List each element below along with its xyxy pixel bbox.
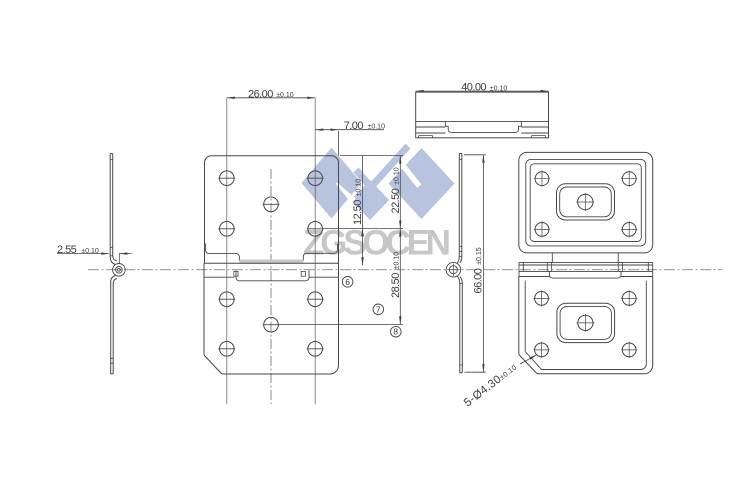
svg-text:±0.10: ±0.10 xyxy=(490,85,508,92)
svg-text:22.50: 22.50 xyxy=(390,188,402,213)
svg-text:2.55: 2.55 xyxy=(57,244,77,256)
svg-text:8: 8 xyxy=(393,327,398,337)
svg-text:±0.10: ±0.10 xyxy=(394,252,401,270)
svg-text:28.50: 28.50 xyxy=(390,273,402,298)
svg-text:±0.10: ±0.10 xyxy=(81,248,99,255)
svg-text:±0.10: ±0.10 xyxy=(356,179,363,197)
svg-text:40.00: 40.00 xyxy=(461,82,486,94)
svg-text:7.00: 7.00 xyxy=(344,120,364,132)
svg-text:6: 6 xyxy=(345,277,350,287)
svg-text:±0.10: ±0.10 xyxy=(394,167,401,185)
svg-text:±0.10: ±0.10 xyxy=(368,124,386,131)
svg-text:±0.15: ±0.15 xyxy=(476,247,483,265)
svg-text:26.00: 26.00 xyxy=(248,88,273,100)
svg-text:±0.10: ±0.10 xyxy=(276,92,294,99)
svg-text:12.50: 12.50 xyxy=(352,200,364,225)
svg-text:5-Ø4.30±0.10: 5-Ø4.30±0.10 xyxy=(462,361,519,409)
svg-text:7: 7 xyxy=(376,304,381,314)
svg-text:ZGSOCEN: ZGSOCEN xyxy=(303,224,449,263)
svg-text:66.00: 66.00 xyxy=(473,268,485,293)
